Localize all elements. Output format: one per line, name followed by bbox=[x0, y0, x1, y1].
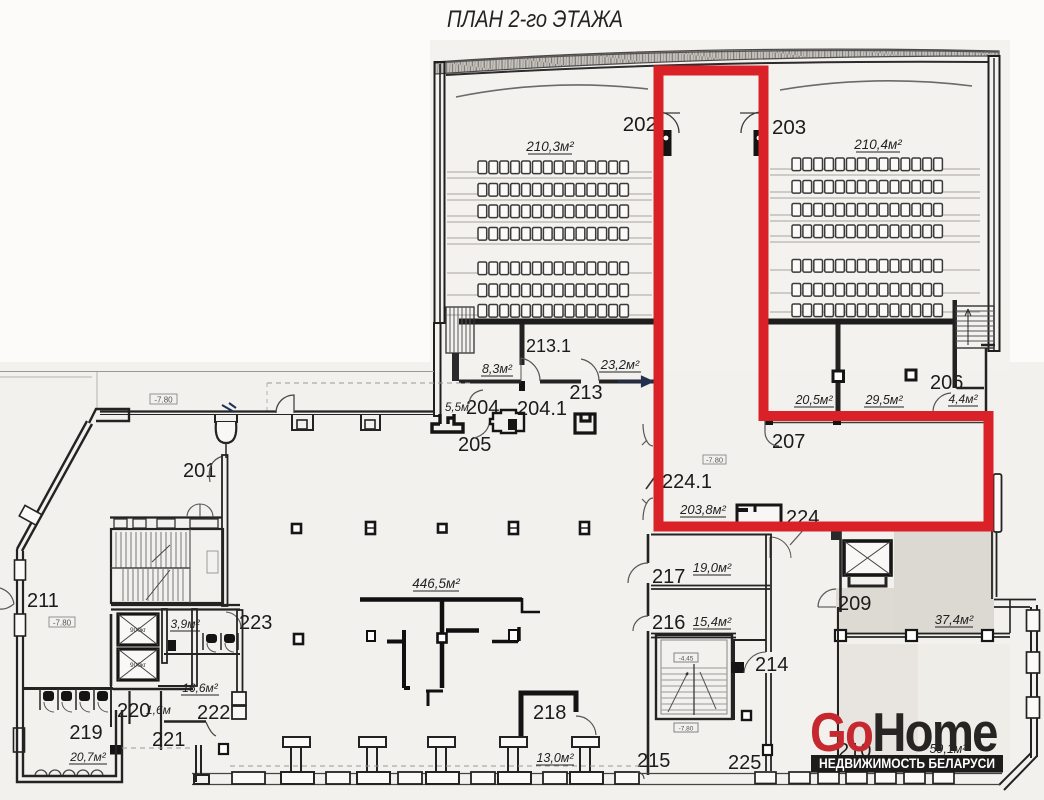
svg-text:218: 218 bbox=[533, 702, 566, 724]
svg-text:210,3м²: 210,3м² bbox=[525, 139, 574, 154]
svg-text:-7.80: -7.80 bbox=[53, 619, 72, 628]
svg-text:900кг: 900кг bbox=[130, 627, 147, 634]
svg-text:213: 213 bbox=[569, 382, 602, 404]
svg-text:203,8м²: 203,8м² bbox=[679, 502, 726, 517]
svg-text:ПЛАН 2-го ЭТАЖА: ПЛАН 2-го ЭТАЖА bbox=[447, 6, 623, 33]
svg-text:214: 214 bbox=[755, 654, 788, 676]
svg-text:3,9м²: 3,9м² bbox=[171, 617, 201, 631]
svg-text:8,3м²: 8,3м² bbox=[482, 362, 513, 376]
svg-text:223: 223 bbox=[239, 612, 272, 634]
svg-text:4,4м²: 4,4м² bbox=[949, 392, 979, 406]
svg-text:-7.80: -7.80 bbox=[679, 726, 694, 733]
svg-text:GoHome: GoHome bbox=[810, 702, 997, 763]
svg-text:204: 204 bbox=[466, 397, 499, 419]
svg-text:213.1: 213.1 bbox=[526, 336, 571, 356]
svg-text:-7.80: -7.80 bbox=[706, 456, 723, 465]
svg-text:446,5м²: 446,5м² bbox=[412, 576, 460, 591]
svg-text:37,4м²: 37,4м² bbox=[935, 612, 974, 627]
svg-text:207: 207 bbox=[772, 431, 805, 453]
svg-text:219: 219 bbox=[69, 722, 102, 744]
svg-text:203: 203 bbox=[772, 116, 806, 139]
svg-text:224.1: 224.1 bbox=[662, 471, 712, 493]
svg-text:-4.45: -4.45 bbox=[679, 656, 694, 663]
svg-text:16,6м²: 16,6м² bbox=[182, 681, 219, 695]
svg-text:206: 206 bbox=[930, 372, 963, 394]
svg-text:13,0м²: 13,0м² bbox=[536, 751, 574, 765]
svg-text:НЕДВИЖИМОСТЬ БЕЛАРУСИ: НЕДВИЖИМОСТЬ БЕЛАРУСИ bbox=[819, 756, 995, 771]
svg-text:20,5м²: 20,5м² bbox=[794, 393, 833, 407]
svg-text:-7.80: -7.80 bbox=[154, 396, 173, 405]
svg-text:23,2м²: 23,2м² bbox=[600, 357, 640, 372]
svg-text:1,6м: 1,6м bbox=[146, 703, 171, 717]
svg-text:210,4м²: 210,4м² bbox=[853, 137, 902, 152]
svg-text:201: 201 bbox=[183, 460, 216, 482]
svg-text:20,7м²: 20,7м² bbox=[69, 750, 107, 764]
svg-text:5,5м: 5,5м bbox=[445, 402, 469, 414]
svg-text:211: 211 bbox=[27, 590, 59, 612]
svg-text:215: 215 bbox=[637, 750, 670, 772]
svg-text:216: 216 bbox=[652, 612, 685, 634]
svg-text:202: 202 bbox=[623, 113, 657, 136]
svg-text:15,4м²: 15,4м² bbox=[693, 614, 732, 629]
svg-text:19,0м²: 19,0м² bbox=[693, 560, 732, 575]
svg-text:225: 225 bbox=[728, 752, 761, 774]
svg-text:900кг: 900кг bbox=[130, 662, 147, 669]
svg-text:209: 209 bbox=[838, 593, 871, 615]
svg-text:29,5м²: 29,5м² bbox=[864, 393, 903, 407]
